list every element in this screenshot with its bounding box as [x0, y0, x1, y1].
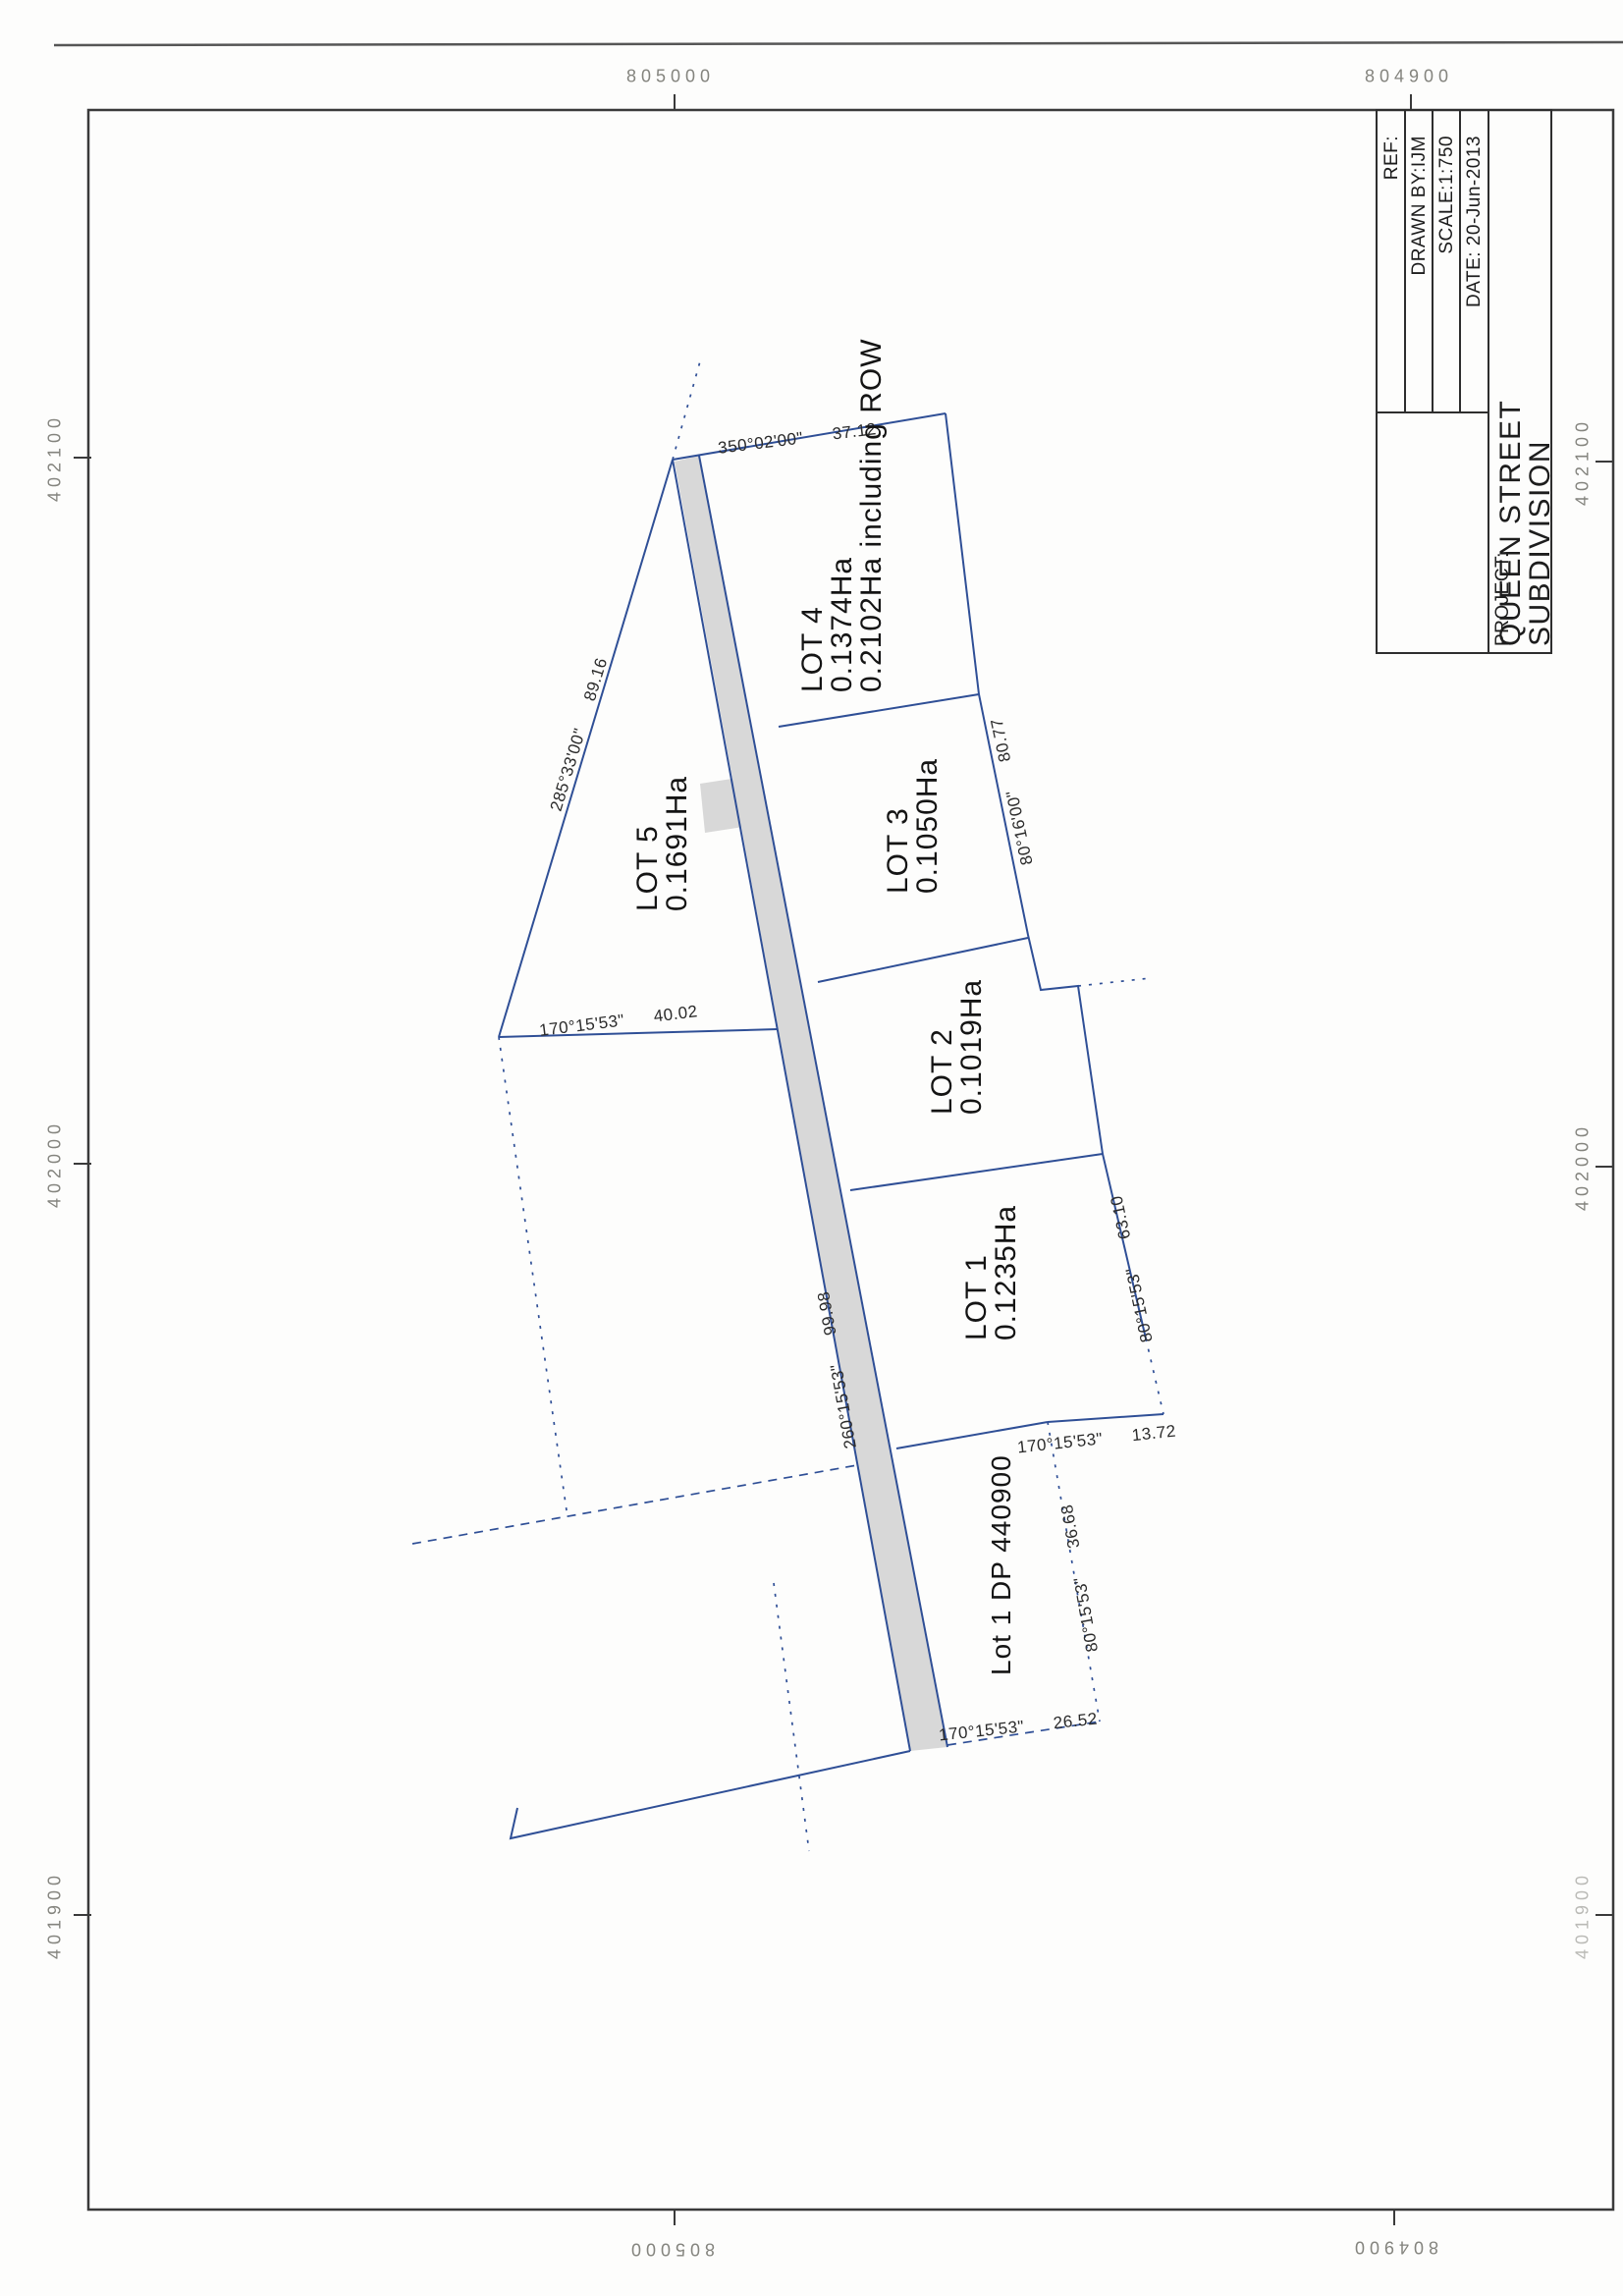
survey-plan-sheet: 805000 804900 805000 804900 402100 40200… — [0, 0, 1623, 2296]
grid-label-top-804900: 804900 — [1365, 67, 1453, 87]
titleblock-drawn-by: DRAWN BY:IJM — [1409, 136, 1431, 276]
grid-label-right-402100: 402100 — [1573, 417, 1594, 506]
lot5-name: LOT 5 — [633, 776, 663, 911]
project-name-line2: SUBDIVISION — [1526, 400, 1555, 646]
lot2-label: LOT 2 0.1019Ha — [928, 979, 987, 1115]
lot3-label: LOT 3 0.1050Ha — [884, 758, 943, 894]
boundary-lines-dotted — [412, 361, 1163, 1851]
scan-edge-line — [54, 42, 1623, 45]
lot1-area: 0.1235Ha — [992, 1205, 1021, 1340]
lot3-area: 0.1050Ha — [913, 758, 943, 894]
lot1-name: LOT 1 — [962, 1205, 992, 1340]
grid-label-bottom-804900: 804900 — [1350, 2237, 1438, 2258]
lot4-label: LOT 4 0.1374Ha 0.2102Ha including ROW — [798, 338, 887, 692]
lot4-area: 0.1374Ha — [828, 338, 857, 692]
grid-label-right-401900: 401900 — [1573, 1871, 1594, 1959]
lot5-area: 0.1691Ha — [663, 776, 692, 911]
titleblock-scale: SCALE:1:750 — [1436, 136, 1458, 254]
project-name-line1: QUEEN STREET — [1496, 400, 1526, 646]
lot1-label: LOT 1 0.1235Ha — [962, 1205, 1021, 1340]
neighbour-lot-label: Lot 1 DP 440900 — [986, 1454, 1017, 1675]
grid-label-bottom-805000: 805000 — [626, 2239, 715, 2260]
titleblock-project-name: QUEEN STREET SUBDIVISION — [1496, 400, 1555, 646]
lot4-area-including-row: 0.2102Ha including ROW — [857, 338, 887, 692]
distance-value: 26.52 — [1053, 1710, 1099, 1733]
grid-label-left-402000: 402000 — [45, 1120, 66, 1208]
lot3-name: LOT 3 — [884, 758, 913, 894]
grid-label-right-402000: 402000 — [1573, 1122, 1594, 1211]
titleblock-date: DATE: 20-Jun-2013 — [1464, 136, 1486, 307]
lot2-name: LOT 2 — [928, 979, 957, 1115]
titleblock-ref: REF: — [1381, 136, 1403, 180]
lot2-area: 0.1019Ha — [957, 979, 987, 1115]
lot5-label: LOT 5 0.1691Ha — [633, 776, 692, 911]
grid-label-top-805000: 805000 — [626, 67, 715, 87]
distance-value: 40.02 — [653, 1002, 699, 1025]
grid-label-left-402100: 402100 — [45, 413, 66, 502]
grid-label-left-401900: 401900 — [45, 1871, 66, 1959]
distance-value: 13.72 — [1131, 1422, 1177, 1446]
lot4-name: LOT 4 — [798, 338, 828, 692]
